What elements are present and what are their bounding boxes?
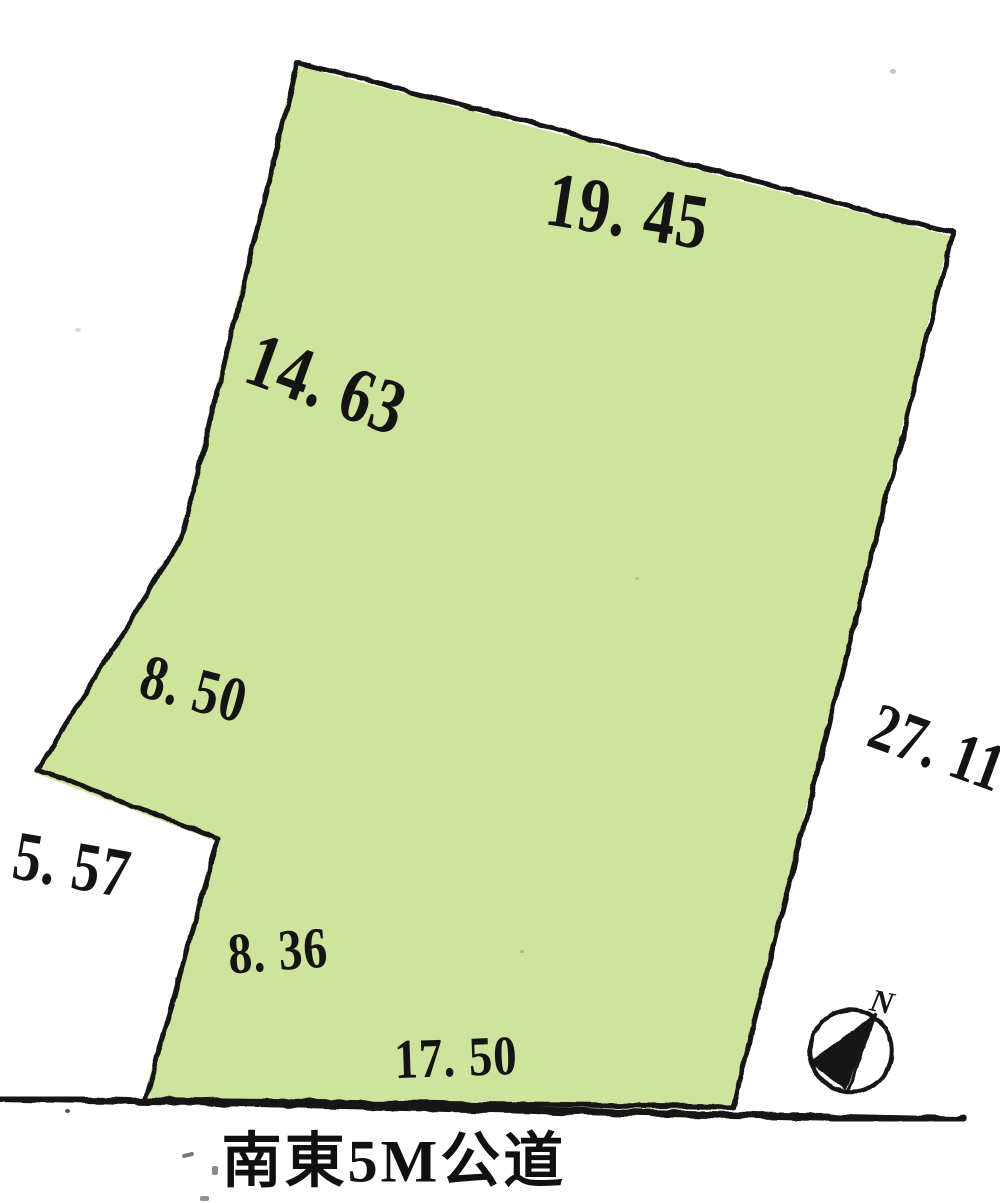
dimension-lower-left-edge: 8. 36: [226, 919, 330, 984]
road-label: 南東5M公道: [222, 1113, 567, 1200]
dimension-bottom-edge: 17. 50: [393, 1028, 518, 1088]
land-plot-diagram: 19. 45 14. 63 8. 50 5. 57 8. 36 17. 50 2…: [0, 0, 1000, 1203]
parcel-fill: [35, 65, 950, 1110]
scan-speck: [890, 69, 896, 74]
scan-speck: [212, 1166, 218, 1175]
scan-speck: [520, 950, 524, 953]
scan-speck: [65, 1109, 70, 1113]
scan-speck: [200, 1196, 209, 1201]
scan-speck: [635, 577, 639, 580]
parcel-map-svg: [0, 0, 1000, 1203]
scan-speck: [75, 328, 81, 332]
